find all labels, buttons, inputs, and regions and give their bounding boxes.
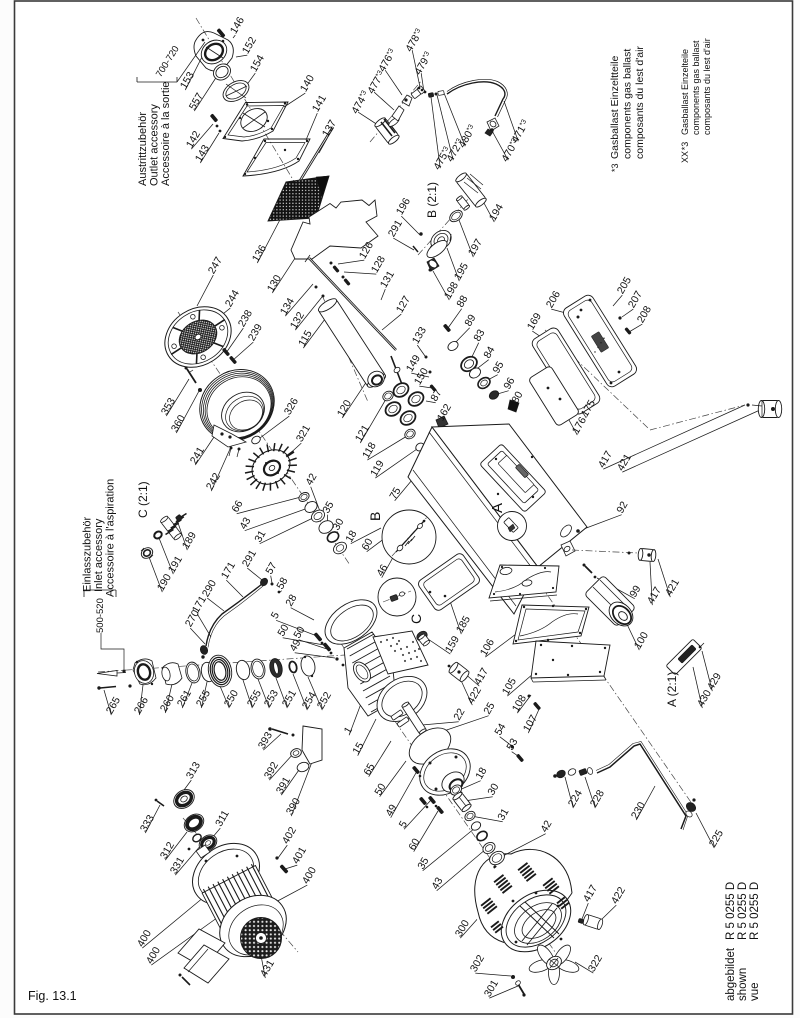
- svg-text:vue: vue: [749, 982, 761, 1001]
- svg-text:composants du lest d'air: composants du lest d'air: [702, 38, 712, 135]
- svg-text:XX *3: XX *3: [680, 142, 690, 163]
- svg-text:Gasballast Einzeltteile: Gasballast Einzeltteile: [609, 56, 621, 159]
- svg-text:500-520: 500-520: [95, 598, 106, 633]
- svg-text:Inlet accessory: Inlet accessory: [93, 518, 105, 592]
- svg-text:composants du lest d'air: composants du lest d'air: [634, 46, 646, 159]
- svg-text:*3: *3: [610, 163, 620, 172]
- svg-text:Einlasszubehör: Einlasszubehör: [82, 516, 94, 592]
- svg-text:Fig. 13.1: Fig. 13.1: [28, 989, 77, 1003]
- svg-text:C (2:1): C (2:1): [136, 481, 150, 518]
- svg-text:Austrittzubehör: Austrittzubehör: [137, 112, 149, 186]
- svg-text:Gasballast Einzelteile: Gasballast Einzelteile: [680, 49, 690, 135]
- svg-text:Outlet accessory: Outlet accessory: [149, 104, 161, 186]
- svg-text:A: A: [489, 503, 506, 513]
- svg-text:abgebildet: abgebildet: [725, 947, 737, 1001]
- svg-text:R 5 0255 D: R 5 0255 D: [725, 882, 737, 940]
- svg-text:A (2:1): A (2:1): [665, 672, 679, 707]
- svg-text:Accessoire à l'aspiration: Accessoire à l'aspiration: [105, 479, 117, 597]
- svg-text:Accessoire à la sortie: Accessoire à la sortie: [160, 81, 172, 186]
- svg-text:C: C: [408, 614, 424, 624]
- svg-text:shown: shown: [737, 968, 749, 1001]
- svg-text:components gas ballast: components gas ballast: [622, 49, 634, 159]
- svg-text:components gas ballast: components gas ballast: [691, 40, 701, 135]
- svg-text:R 5 0255 D: R 5 0255 D: [737, 882, 749, 940]
- svg-text:B: B: [367, 512, 383, 521]
- svg-text:B (2:1): B (2:1): [425, 182, 439, 218]
- svg-text:R 5 0255 D: R 5 0255 D: [749, 882, 761, 940]
